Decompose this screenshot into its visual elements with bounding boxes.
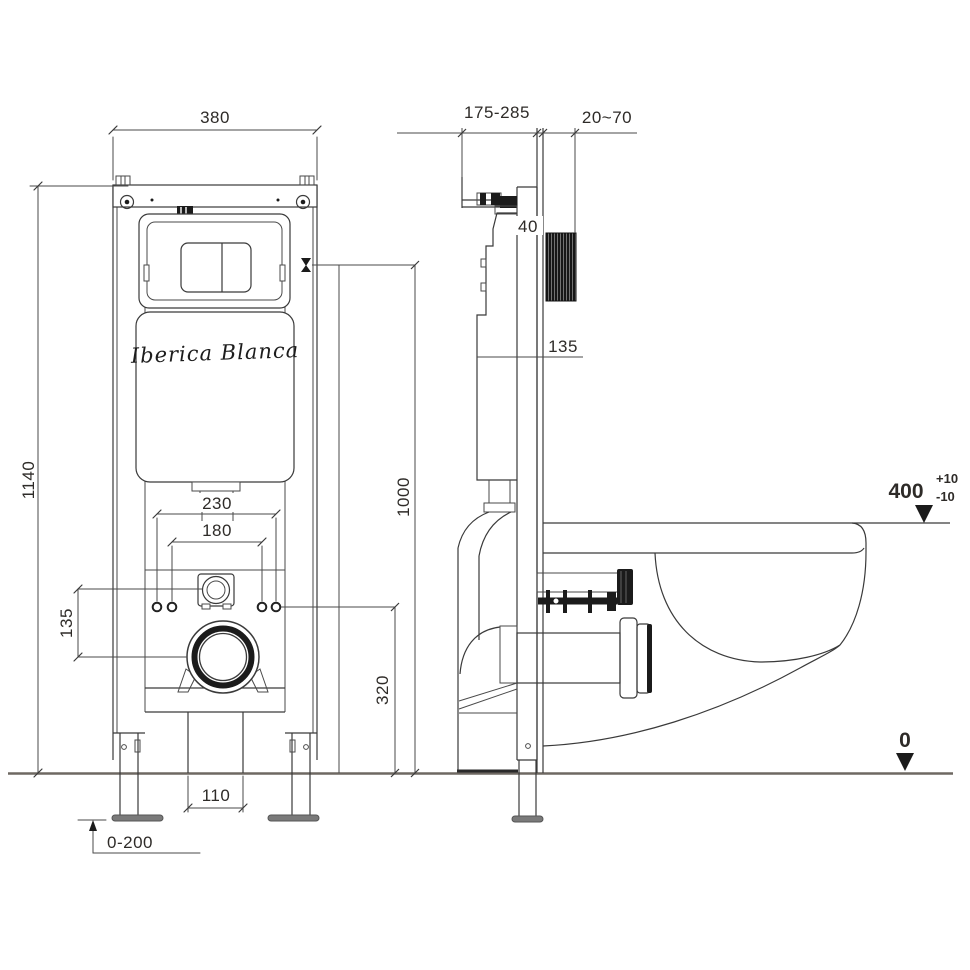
cistern-side-profile	[477, 206, 517, 512]
dim-inlet-offset: 135	[57, 608, 76, 638]
center-dimensions: 1000 320	[281, 258, 419, 777]
dim-height-left: 1140	[19, 461, 38, 500]
tol-plus: +10	[936, 471, 958, 486]
drain-socket	[178, 621, 268, 693]
tol-minus: -10	[936, 489, 955, 504]
dim-depth-range: 175-285	[464, 103, 530, 122]
foot-plate-right	[268, 815, 319, 821]
dim-bowl-height: 400	[888, 480, 923, 503]
flush-plate-buttons	[181, 243, 251, 292]
hanger-studs	[538, 590, 617, 613]
dim-wall-finish: 20~70	[582, 108, 632, 127]
dim-shaft-height: 135	[548, 337, 578, 356]
dim-outlet-width: 110	[202, 786, 231, 805]
cistern-tank	[136, 312, 294, 482]
dim-bolt-height: 320	[373, 675, 392, 705]
dim-leg-adjust: 0-200	[107, 833, 153, 852]
dim-opening-width: 230	[202, 494, 232, 513]
top-tab-right	[300, 176, 314, 185]
dim-bolt-spacing: 180	[202, 521, 232, 540]
floor-level-marker: 0	[896, 729, 914, 771]
flush-plate-assembly	[139, 214, 290, 308]
top-tab-left	[116, 176, 130, 185]
dim-width-top: 380	[200, 108, 230, 127]
bowl-height-marker: 400 +10 -10	[888, 471, 958, 523]
floor-level-label: 0	[899, 729, 911, 752]
arrow-up	[89, 820, 97, 831]
flush-bend-pipe	[458, 512, 511, 771]
wall-bracket	[462, 177, 517, 208]
drain-elbow	[457, 626, 518, 771]
water-inlet	[198, 574, 234, 609]
flush-shaft-hatch	[546, 233, 576, 301]
technical-drawing-page: Iberica Blanca 380	[0, 0, 970, 970]
top-crossbar	[113, 185, 317, 207]
level-marker-glyph	[301, 258, 311, 272]
installation-drawing: Iberica Blanca 380	[0, 0, 970, 970]
dim-rail-depth: 40	[518, 217, 538, 236]
foot-plate-left	[112, 815, 163, 821]
dim-flush-height: 1000	[394, 477, 413, 517]
cistern-neck	[192, 482, 240, 491]
toilet-bowl-profile	[543, 523, 950, 746]
